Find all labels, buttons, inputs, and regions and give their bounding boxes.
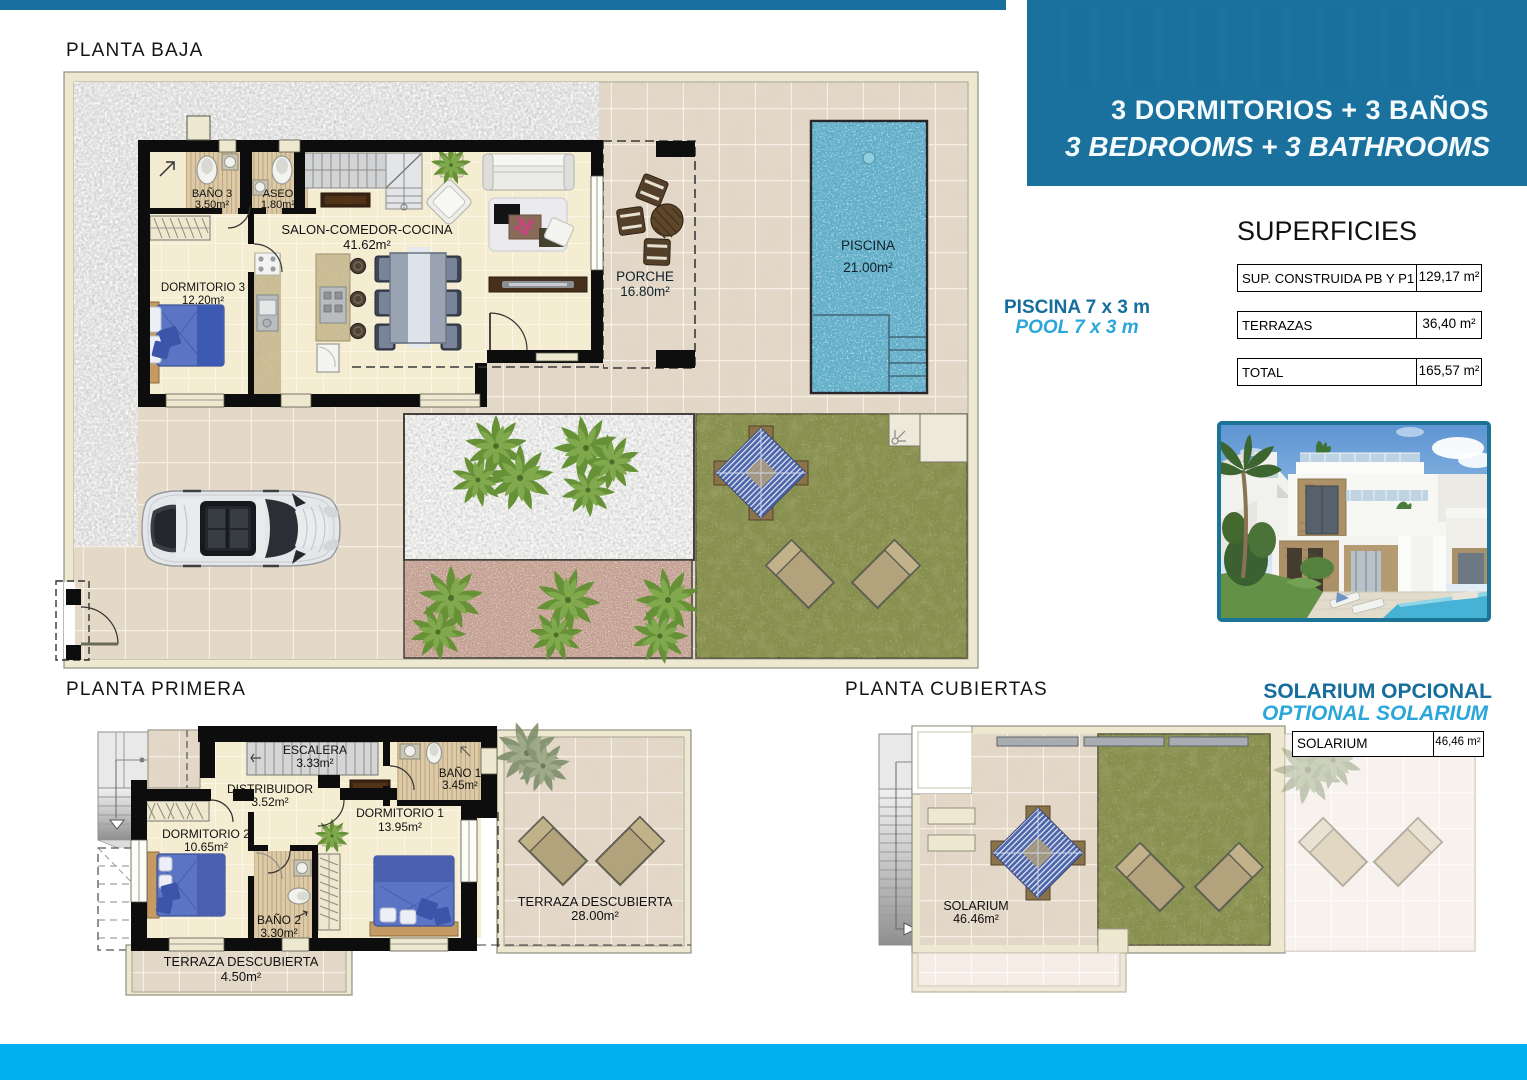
svg-text:PORCHE: PORCHE — [616, 269, 674, 284]
svg-text:DORMITORIO 1: DORMITORIO 1 — [356, 806, 444, 820]
svg-text:16.80m²: 16.80m² — [620, 284, 670, 299]
svg-text:3.33m²: 3.33m² — [296, 756, 333, 770]
svg-text:DORMITORIO 2: DORMITORIO 2 — [162, 827, 250, 841]
svg-text:3.30m²: 3.30m² — [260, 926, 297, 940]
svg-text:10.65m²: 10.65m² — [184, 840, 228, 854]
svg-text:DISTRIBUIDOR: DISTRIBUIDOR — [227, 782, 313, 796]
svg-text:3.45m²: 3.45m² — [442, 780, 478, 792]
svg-text:13.95m²: 13.95m² — [378, 820, 422, 834]
svg-text:3.50m²: 3.50m² — [195, 199, 230, 211]
svg-text:PISCINA: PISCINA — [841, 238, 895, 253]
svg-text:TERRAZA DESCUBIERTA: TERRAZA DESCUBIERTA — [164, 954, 319, 969]
svg-text:BAÑO 1: BAÑO 1 — [439, 767, 481, 780]
svg-text:SOLARIUM: SOLARIUM — [943, 899, 1008, 913]
svg-text:DORMITORIO 3: DORMITORIO 3 — [161, 282, 245, 294]
svg-text:46.46m²: 46.46m² — [953, 912, 999, 926]
svg-text:4.50m²: 4.50m² — [221, 969, 262, 984]
svg-text:28.00m²: 28.00m² — [571, 908, 619, 923]
svg-text:1.80m²: 1.80m² — [261, 199, 296, 211]
svg-text:12.20m²: 12.20m² — [182, 295, 224, 307]
svg-text:21.00m²: 21.00m² — [843, 260, 893, 275]
svg-text:ESCALERA: ESCALERA — [283, 743, 347, 757]
svg-text:BAÑO 2: BAÑO 2 — [257, 913, 301, 927]
svg-text:TERRAZA DESCUBIERTA: TERRAZA DESCUBIERTA — [518, 894, 673, 909]
svg-text:3.52m²: 3.52m² — [251, 795, 288, 809]
svg-text:SALON-COMEDOR-COCINA: SALON-COMEDOR-COCINA — [281, 222, 453, 237]
svg-text:41.62m²: 41.62m² — [343, 237, 391, 252]
